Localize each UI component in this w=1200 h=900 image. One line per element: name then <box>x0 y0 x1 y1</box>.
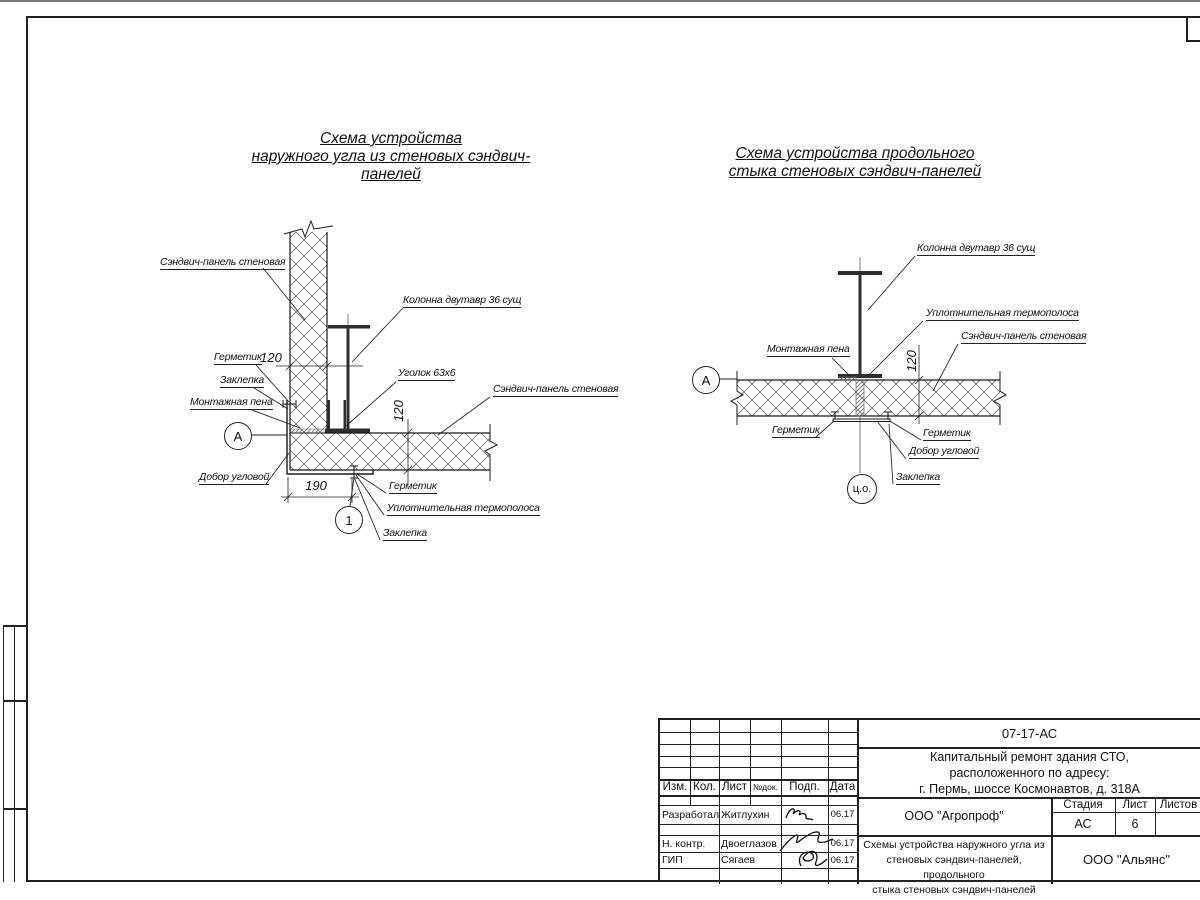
label-sealant: Герметик <box>772 425 820 438</box>
ibeam-bottom-flange <box>325 429 370 433</box>
sig-row-name: Двоеглазов <box>721 835 781 852</box>
sheet-name-line3: стыка стеновых сэндвич-панелей <box>857 883 1051 898</box>
col-header-kol: Кол. <box>690 779 719 795</box>
label-rivet: Заклепка <box>220 375 264 388</box>
ibeam-web <box>347 328 350 429</box>
label-angle-63x6: Уголок 63х6 <box>398 368 455 381</box>
dim-text-120-v: 120 <box>392 398 406 424</box>
right-scheme-title: Схема устройства продольного стыка стено… <box>695 145 1015 181</box>
label-sandwich-panel-wall: Сэндвич-панель стеновая <box>961 331 1086 344</box>
project-line1: Капитальный ремонт здания СТО, <box>857 749 1200 765</box>
drawing-sheet: Схема устройства наружного угла из стено… <box>0 0 1200 900</box>
wall-panel-horizontal <box>290 433 490 470</box>
col-header-list: Лист <box>719 779 750 795</box>
ibeam-top-flange <box>328 325 370 329</box>
foam-strip <box>291 429 324 433</box>
joint-cover-bar <box>833 419 890 422</box>
label-sandwich-panel-wall: Сэндвич-панель стеновая <box>493 384 618 397</box>
sig-row-date: 06.17 <box>828 805 857 824</box>
label-sealant: Герметик <box>214 352 262 365</box>
project-name: Капитальный ремонт здания СТО, расположе… <box>857 749 1200 797</box>
col-header-data: Дата <box>828 779 857 795</box>
sig-row-name: Житлухин <box>721 805 781 824</box>
left-title-line2: наружного угла из стеновых сэндвич-панел… <box>252 148 531 183</box>
left-title-line1: Схема устройства <box>320 130 462 147</box>
col-header-podp: Подп. <box>781 779 828 795</box>
sig-row-name: Сягаев <box>721 852 781 868</box>
thermo-strip <box>856 380 864 416</box>
dim-text-120-h: 120 <box>258 351 284 365</box>
center-axis-marker: ц.о. <box>847 474 877 504</box>
label-sealant: Герметик <box>923 428 971 441</box>
dim-text-120: 120 <box>905 348 919 374</box>
title-block: Изм. Кол. Лист №док. Подп. Дата 07-17-АС… <box>658 718 1200 882</box>
col-header-doc: №док. <box>750 779 781 795</box>
sig-row-role: ГИП <box>662 852 719 868</box>
ibeam-web <box>859 275 862 375</box>
label-column-ibeam: Колонна двутавр 36 сущ <box>403 295 521 308</box>
ibeam-top-flange <box>838 271 882 275</box>
sheet-name: Схемы устройства наружного угла из стено… <box>857 838 1051 884</box>
left-scheme-title: Схема устройства наружного угла из стено… <box>230 130 552 184</box>
label-corner-trim: Добор угловой <box>199 472 269 485</box>
label-corner-trim: Добор угловой <box>909 446 979 459</box>
label-rivet: Заклепка <box>383 528 427 541</box>
sheet-name-line1: Схемы устройства наружного угла из <box>857 838 1051 853</box>
sig-row-role: Разработал <box>662 805 719 824</box>
label-column-ibeam: Колонна двутавр 36 сущ <box>917 243 1035 256</box>
sheet-value: 6 <box>1115 812 1155 835</box>
dim-text-190: 190 <box>300 479 332 493</box>
foam-strip <box>839 377 856 381</box>
sig-row-date: 06.17 <box>828 835 857 852</box>
doc-number: 07-17-АС <box>857 720 1200 747</box>
angle-leg <box>344 400 347 429</box>
sheet-name-line2: стеновых сэндвич-панелей, продольного <box>857 853 1051 883</box>
sheet-label: Лист <box>1115 797 1155 812</box>
sheets-label: Листов <box>1155 797 1200 812</box>
axis-marker-a: А <box>692 366 720 394</box>
project-line3: г. Пермь, шоссе Космонавтов, д. 318А <box>857 781 1200 797</box>
label-thermo-strip: Уплотнительная термополоса <box>387 503 540 516</box>
col-header-izm: Изм. <box>660 779 690 795</box>
contractor-org: ООО "Альянс" <box>1051 835 1200 884</box>
label-thermo-strip: Уплотнительная термополоса <box>926 308 1079 321</box>
designer-org: ООО "Агропроф" <box>857 797 1051 835</box>
label-rivet: Заклепка <box>896 472 940 485</box>
left-diagram-corner-detail <box>250 221 497 540</box>
axis-marker-a: А <box>224 422 252 450</box>
stage-label: Стадия <box>1051 797 1115 812</box>
right-title-line2: стыка стеновых сэндвич-панелей <box>729 163 981 180</box>
project-line2: расположенного по адресу: <box>857 765 1200 781</box>
sig-row-date: 06.17 <box>828 852 857 868</box>
right-title-line1: Схема устройства продольного <box>736 145 975 162</box>
stage-value: АС <box>1051 812 1115 835</box>
label-mounting-foam: Монтажная пена <box>190 397 273 410</box>
sig-row-role: Н. контр. <box>662 835 719 852</box>
detail-marker-1: 1 <box>335 506 363 534</box>
angle-leg <box>327 400 330 429</box>
label-sealant: Герметик <box>389 481 437 494</box>
label-sandwich-panel-wall: Сэндвич-панель стеновая <box>160 257 285 270</box>
label-mounting-foam: Монтажная пена <box>767 344 850 357</box>
wall-panel <box>737 380 1000 416</box>
